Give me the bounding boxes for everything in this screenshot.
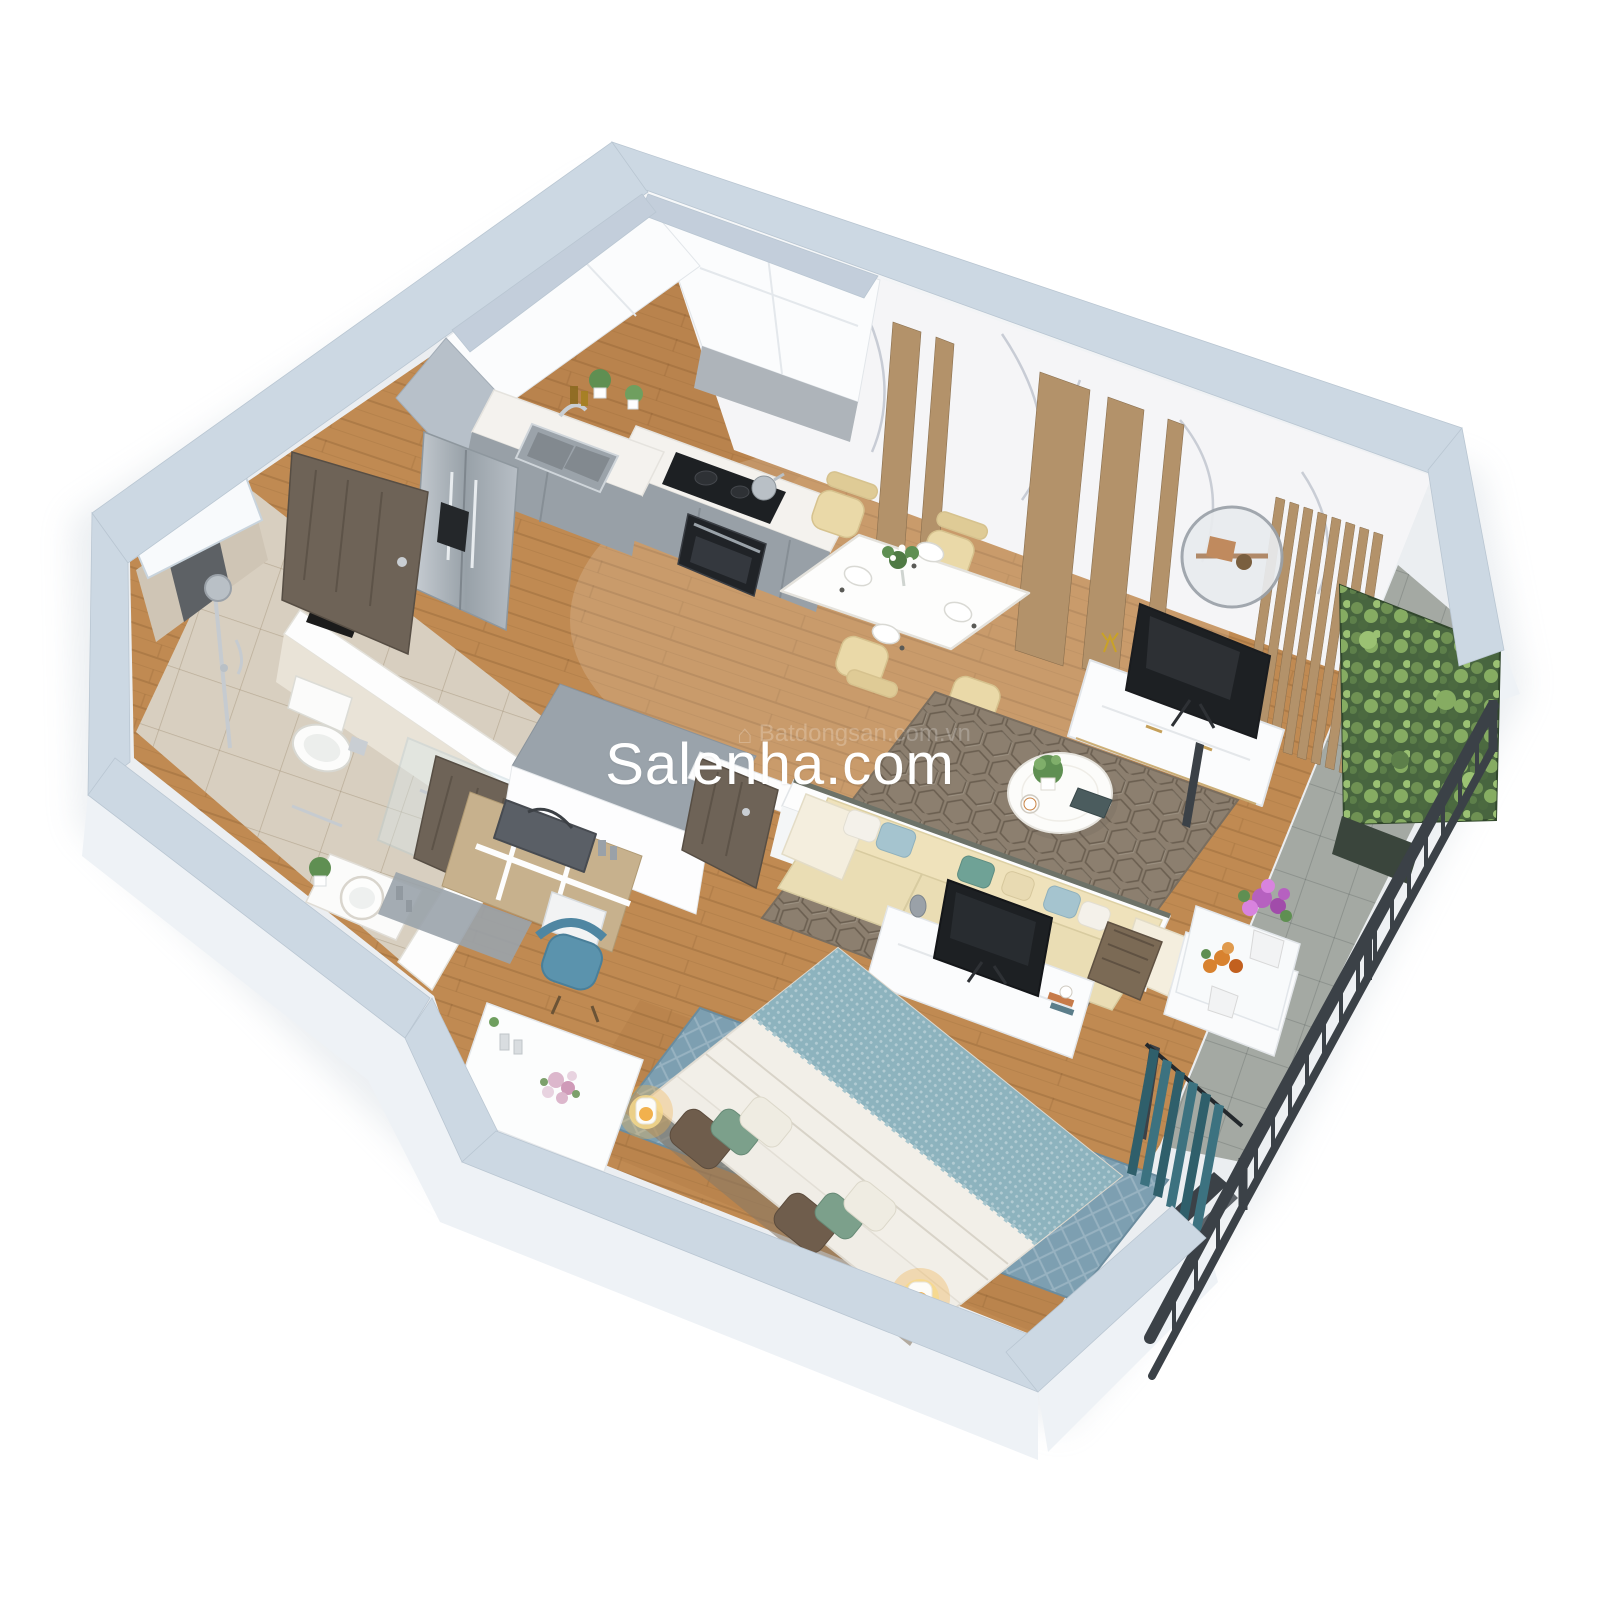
- floorplan-render: [0, 0, 1600, 1600]
- kettle: [752, 476, 776, 500]
- watermark: Salenha.com: [605, 731, 955, 798]
- vase: [910, 895, 926, 917]
- floorplan-stage: ⌂ Batdongsan.com.vn Salenha.com: [0, 0, 1600, 1600]
- wall-mirror: [1182, 507, 1282, 607]
- rain-shower-head: [205, 575, 231, 601]
